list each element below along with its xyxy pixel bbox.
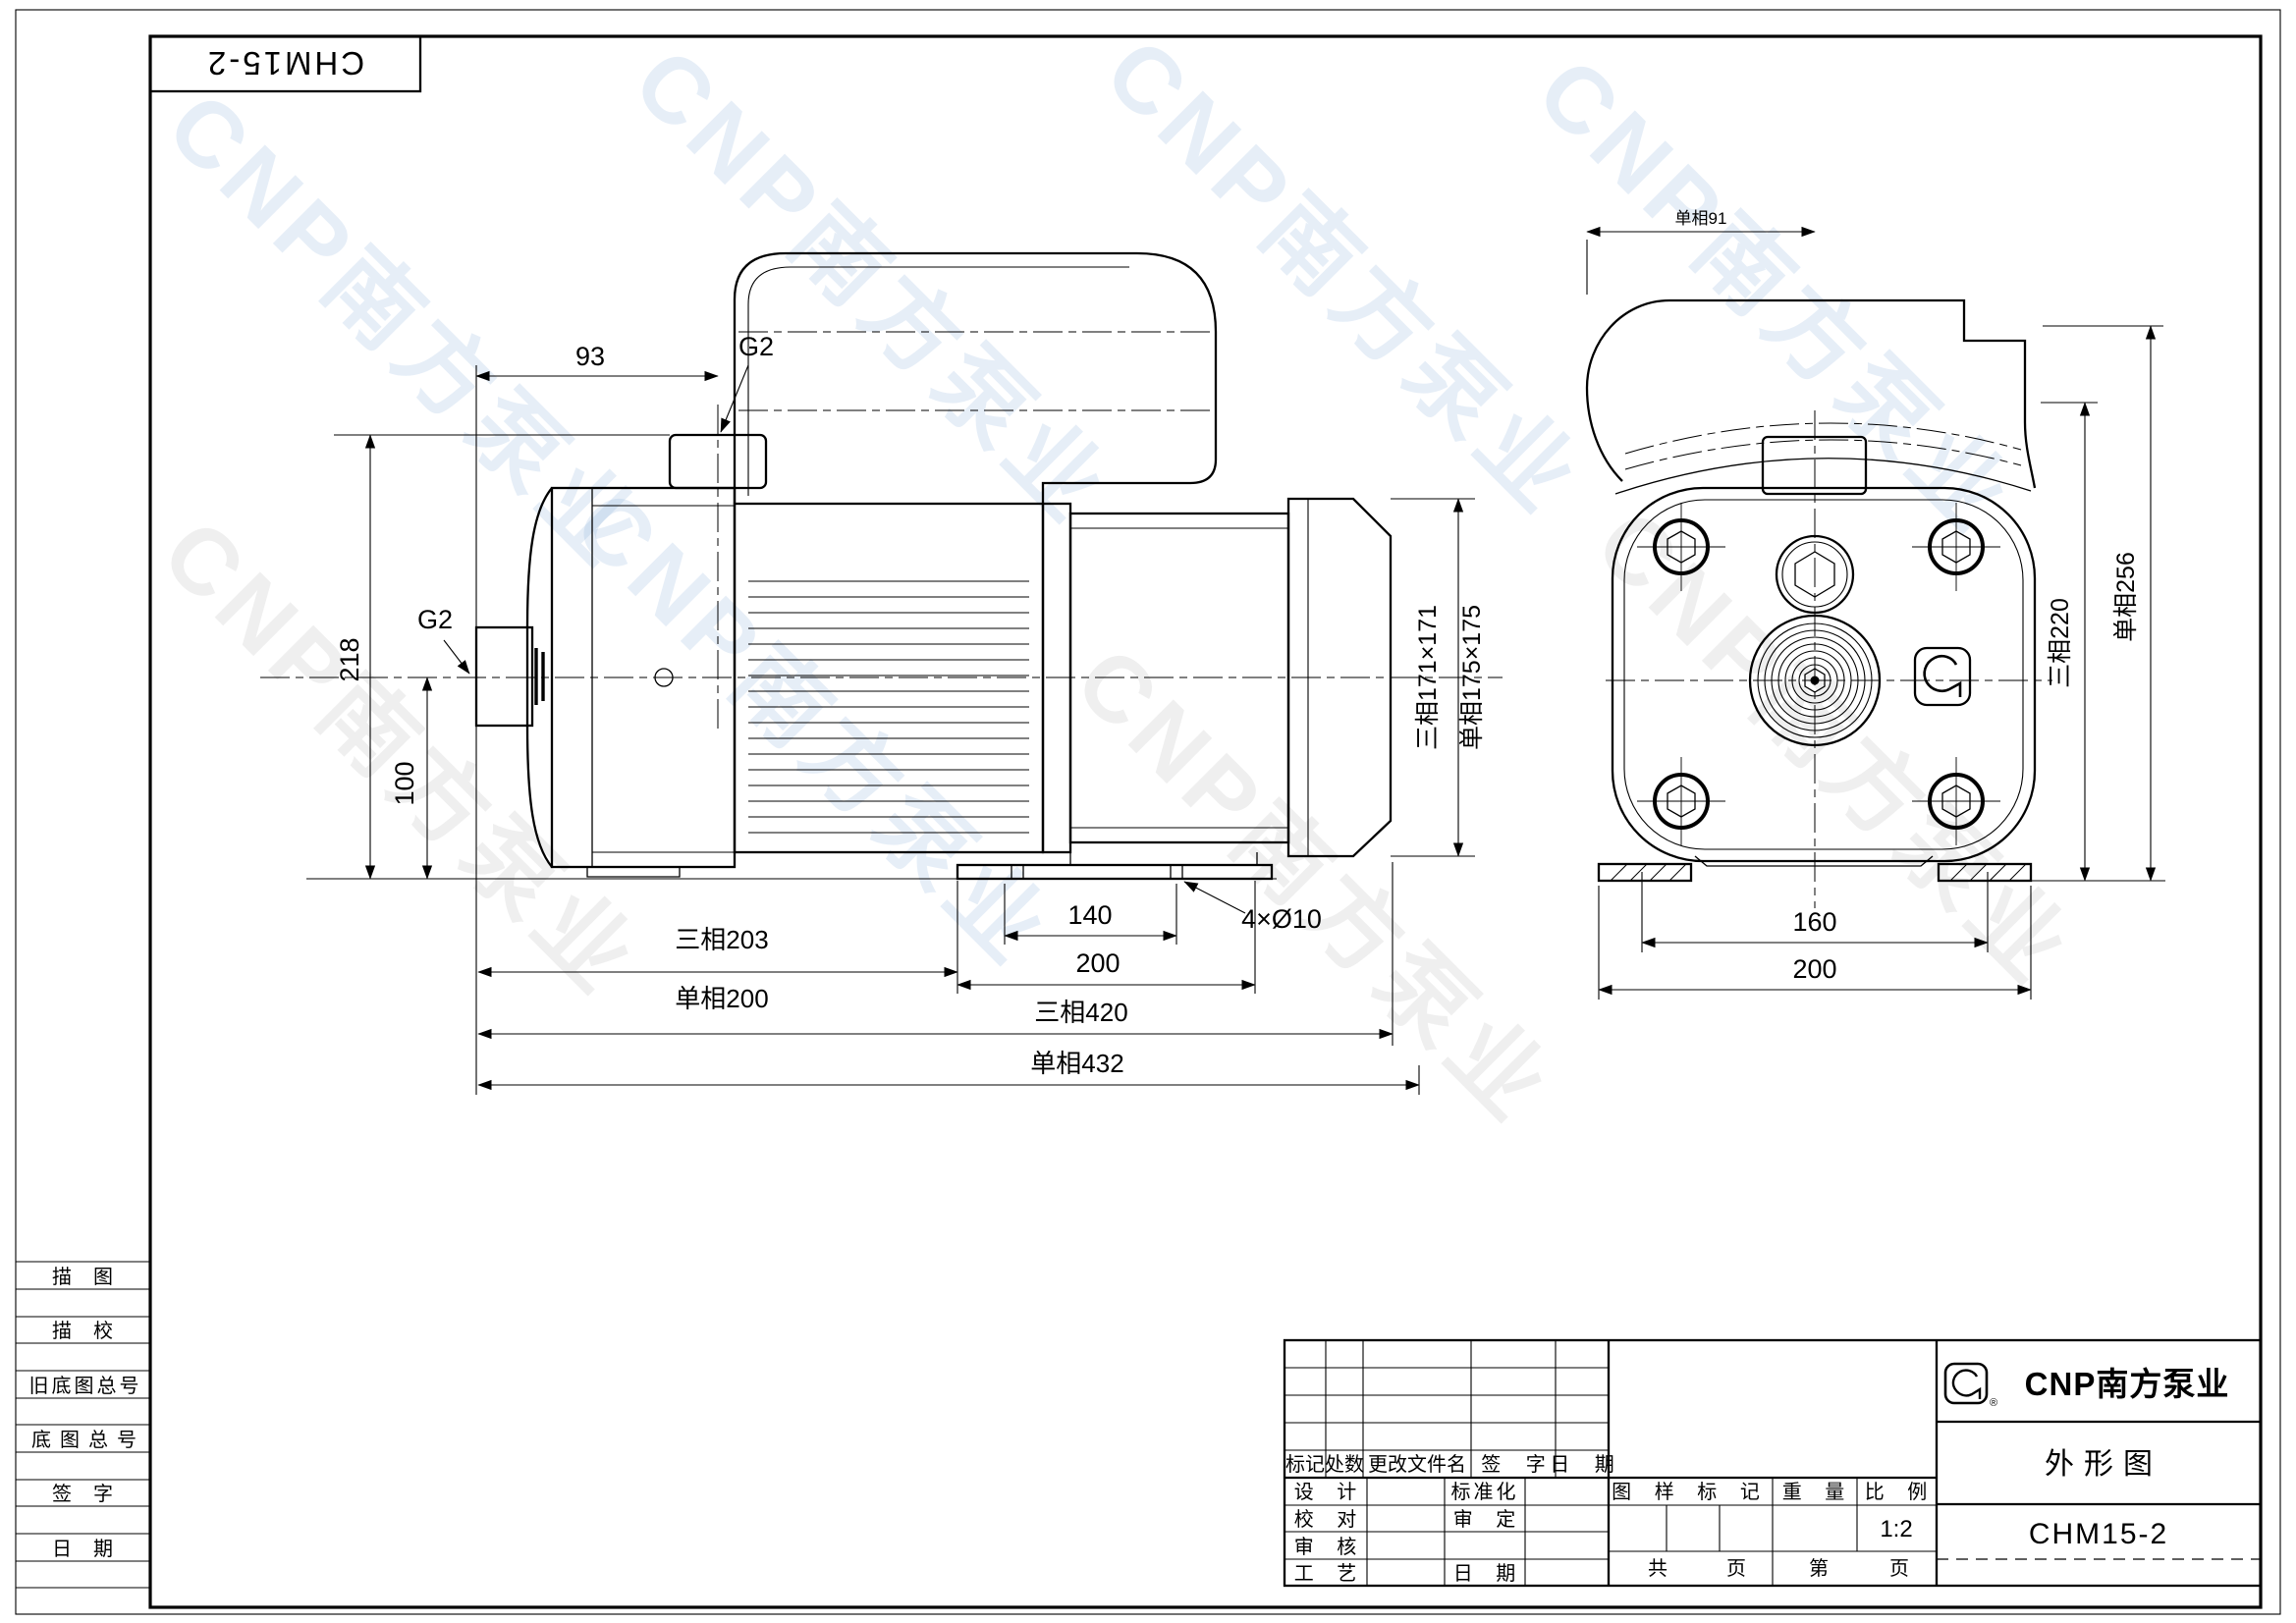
dim-93-label: 93 xyxy=(575,342,605,371)
role-approve: 审 定 xyxy=(1453,1508,1525,1531)
dim-h-1ph-label: 单相256 xyxy=(2112,552,2140,642)
margin-row-trace-check: 描校 xyxy=(52,1320,135,1342)
watermark-text: CNP南方泵业 xyxy=(1085,20,1601,535)
bolt-note-label: 4×Ø10 xyxy=(1241,904,1322,934)
watermark-text: CNP南方泵业 xyxy=(614,29,1129,545)
rev-col-sign: 签 字 xyxy=(1481,1453,1556,1476)
drawing-sheet: CNP南方泵业 CNP南方泵业 CNP南方泵业 CNP南方泵业 CNP南方泵业 … xyxy=(0,0,2296,1623)
brand-name: CNP南方泵业 xyxy=(2025,1366,2230,1402)
dim-total-3ph-label: 三相420 xyxy=(1034,998,1127,1027)
margin-row-base-no: 底图总号 xyxy=(31,1429,145,1451)
model-number: CHM15-2 xyxy=(2029,1518,2168,1550)
dim-160-label: 160 xyxy=(1792,907,1836,937)
weight-label: 重 量 xyxy=(1782,1481,1854,1503)
dim-h-3ph-label: 三相220 xyxy=(2047,598,2074,688)
dim-140-label: 140 xyxy=(1067,900,1112,930)
corner-model-label: CHM15-2 xyxy=(205,45,364,81)
stamp-mark-label: 图 样 标 记 xyxy=(1612,1481,1769,1503)
dim-100-label: 100 xyxy=(390,761,419,805)
rev-col-date: 日 期 xyxy=(1550,1454,1624,1476)
watermark-text: CNP南方泵业 xyxy=(1517,39,2033,555)
dim-len-3ph-label: 三相203 xyxy=(675,925,768,954)
role-craft: 工 艺 xyxy=(1294,1562,1366,1585)
dim-200-front-label: 200 xyxy=(1792,954,1836,984)
rev-col-file: 更改文件名 xyxy=(1368,1453,1466,1476)
drawing-type-title: 外形图 xyxy=(2045,1448,2162,1481)
scale-value: 1:2 xyxy=(1880,1516,1912,1542)
dim-91-1ph-label: 单相91 xyxy=(1675,209,1727,228)
cnp-emblem-icon xyxy=(1915,648,1970,705)
dim-200-label: 200 xyxy=(1075,948,1120,978)
margin-row-date: 日期 xyxy=(52,1539,135,1560)
dim-flange-1ph-label: 单相175×175 xyxy=(1458,605,1486,750)
suction-port xyxy=(476,627,532,726)
rev-col-count: 处数 xyxy=(1325,1453,1364,1476)
title-block: 标记 处数 更改文件名 签 字 日 期 设 计 标准化 校 对 审 定 审 核 … xyxy=(1285,1340,2261,1586)
watermark-text: CNP南方泵业 xyxy=(1056,628,1571,1144)
margin-row-trace: 描图 xyxy=(52,1266,135,1288)
dim-218-label: 218 xyxy=(335,637,364,681)
margin-row-old-no: 旧底图总号 xyxy=(29,1375,142,1397)
rev-col-mark: 标记 xyxy=(1285,1453,1325,1476)
role-review: 审 核 xyxy=(1294,1536,1366,1558)
outlet-port-label: G2 xyxy=(738,332,774,361)
role-check: 校 对 xyxy=(1294,1508,1366,1531)
brand-reg-mark: ® xyxy=(1990,1397,1997,1409)
role-standardize: 标准化 xyxy=(1451,1481,1519,1503)
cnp-logo-icon xyxy=(1945,1364,1987,1403)
role-date: 日 期 xyxy=(1453,1563,1525,1585)
dim-len-1ph-label: 单相200 xyxy=(675,984,768,1013)
pages-total-unit: 页 xyxy=(1726,1558,1746,1580)
scale-label: 比 例 xyxy=(1865,1481,1937,1503)
role-design: 设 计 xyxy=(1294,1481,1366,1503)
pages-page-unit: 页 xyxy=(1889,1558,1909,1580)
margin-row-sign: 签字 xyxy=(52,1483,135,1505)
pages-total-label: 共 xyxy=(1648,1557,1667,1580)
pages-page-label: 第 xyxy=(1809,1557,1829,1580)
cad-drawing: CNP南方泵业 CNP南方泵业 CNP南方泵业 CNP南方泵业 CNP南方泵业 … xyxy=(0,0,2296,1623)
inlet-port-label: G2 xyxy=(417,605,453,634)
watermark-text: CNP南方泵业 xyxy=(555,471,1070,987)
dim-flange-3ph-label: 三相171×171 xyxy=(1414,605,1442,750)
dim-total-1ph-label: 单相432 xyxy=(1030,1049,1123,1078)
margin-table: 描图 描校 旧底图总号 底图总号 签字 日期 xyxy=(16,1262,150,1588)
